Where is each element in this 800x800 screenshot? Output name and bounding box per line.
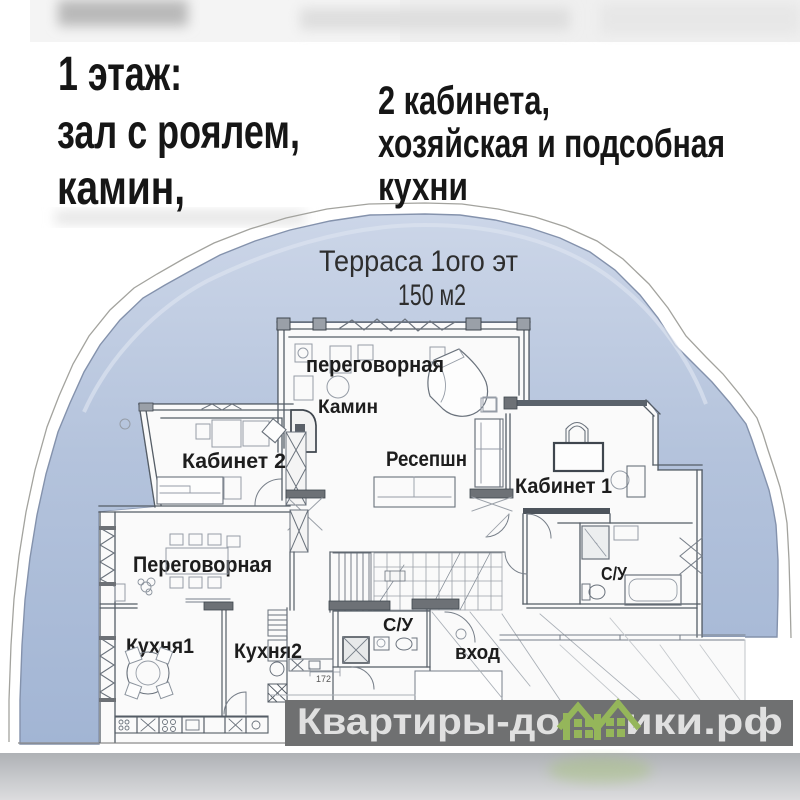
svg-text:Переговорная: Переговорная xyxy=(133,552,272,577)
svg-text:ики.рф: ики.рф xyxy=(625,701,783,742)
svg-text:Ресепшн: Ресепшн xyxy=(386,448,467,471)
svg-text:кухни: кухни xyxy=(378,165,468,209)
svg-text:172: 172 xyxy=(316,674,331,684)
svg-text:С/У: С/У xyxy=(601,564,628,584)
svg-text:Камин: Камин xyxy=(318,397,378,418)
svg-text:Терраса 1ого эт: Терраса 1ого эт xyxy=(319,245,518,278)
svg-text:150 м2: 150 м2 xyxy=(398,279,466,312)
svg-text:переговорная: переговорная xyxy=(306,352,444,377)
svg-text:Кабинет 1: Кабинет 1 xyxy=(515,475,612,498)
svg-text:Квартиры-до: Квартиры-до xyxy=(297,701,560,742)
svg-text:Кабинет 2: Кабинет 2 xyxy=(182,450,286,473)
svg-text:зал с роялем,: зал с роялем, xyxy=(57,106,300,159)
svg-text:С/У: С/У xyxy=(383,615,414,635)
svg-text:1 этаж:: 1 этаж: xyxy=(58,48,182,101)
svg-text:вход: вход xyxy=(455,642,500,664)
svg-text:камин,: камин, xyxy=(57,162,185,215)
svg-text:хозяйская и подсобная: хозяйская и подсобная xyxy=(378,122,725,166)
svg-text:2 кабинета,: 2 кабинета, xyxy=(378,79,550,123)
